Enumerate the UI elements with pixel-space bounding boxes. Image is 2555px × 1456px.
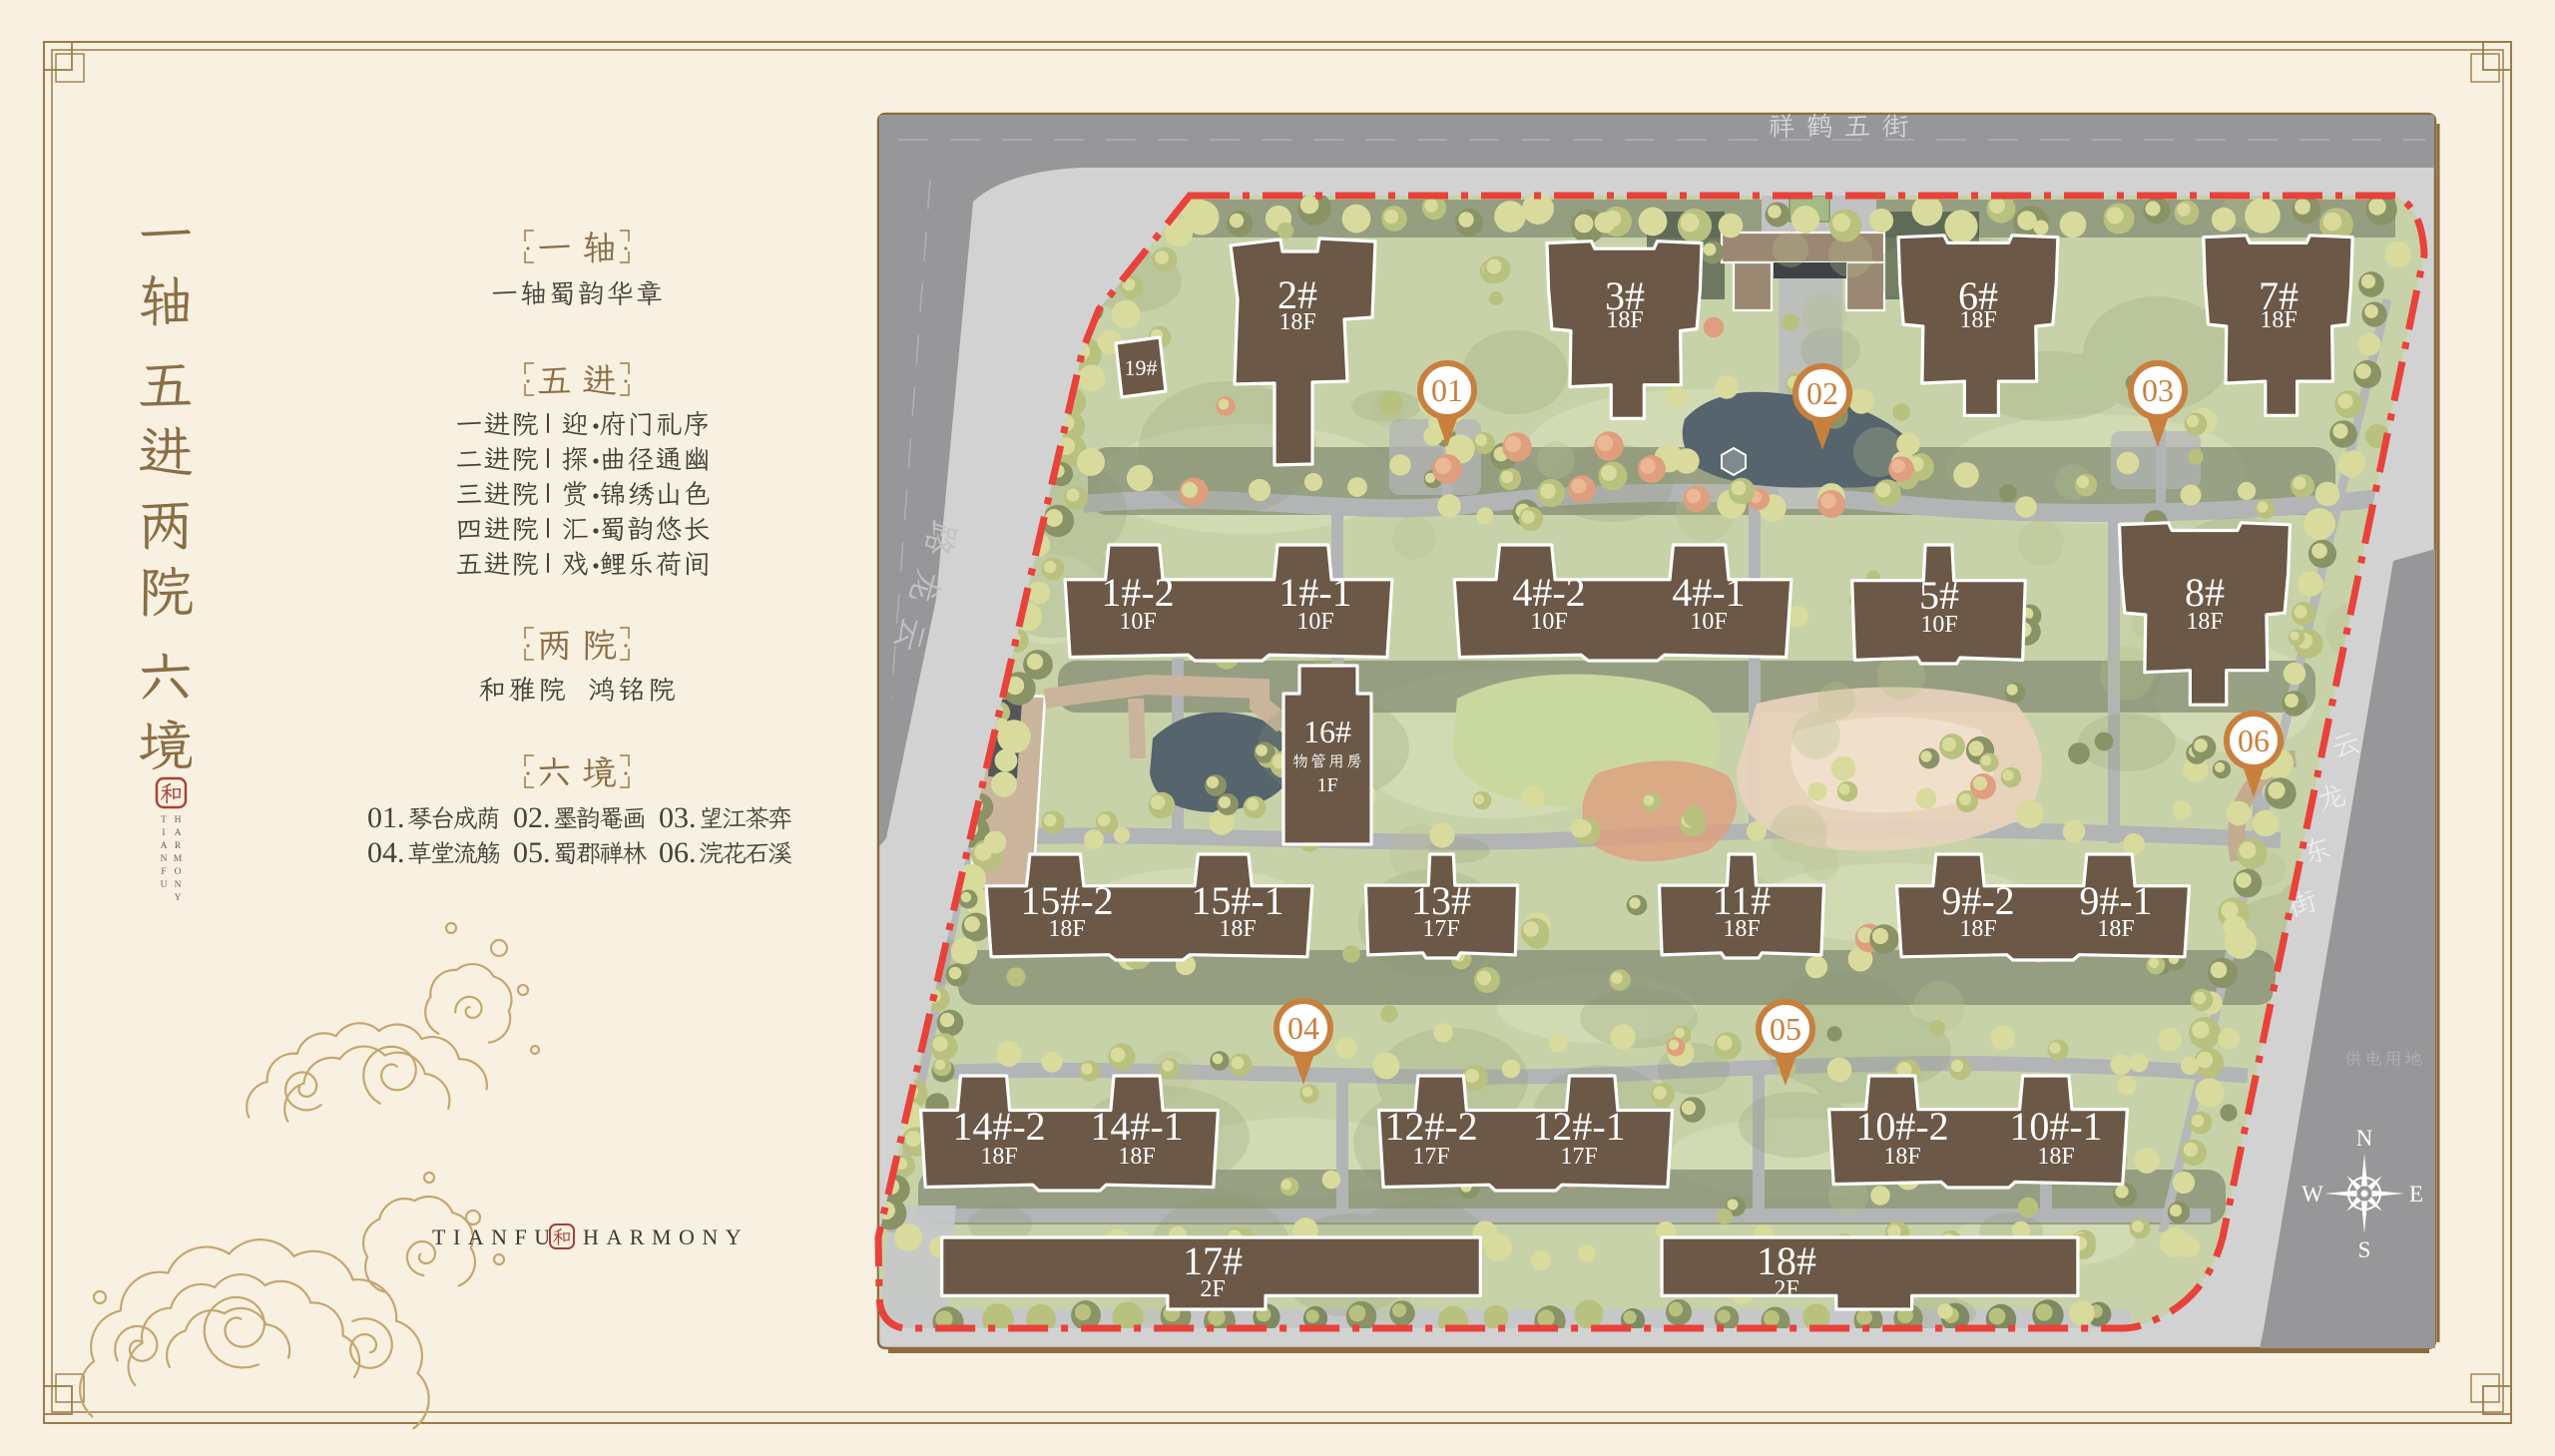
svg-text:01.: 01.	[367, 801, 405, 834]
svg-text:18F: 18F	[2097, 916, 2134, 942]
svg-text:R: R	[175, 841, 182, 851]
svg-text:12#-1: 12#-1	[1532, 1104, 1625, 1149]
svg-text:W: W	[2301, 1182, 2323, 1207]
svg-text:10F: 10F	[1530, 609, 1567, 635]
svg-text:A: A	[161, 841, 168, 851]
svg-text:N: N	[175, 880, 182, 890]
svg-text:10F: 10F	[1296, 609, 1333, 635]
svg-text:A: A	[175, 828, 182, 838]
svg-text:18F: 18F	[1219, 916, 1256, 942]
svg-text:18F: 18F	[1048, 916, 1085, 942]
svg-text:18F: 18F	[2260, 307, 2297, 333]
svg-text:16#: 16#	[1303, 714, 1351, 749]
svg-text:18F: 18F	[1606, 307, 1643, 333]
svg-text:05.: 05.	[513, 836, 551, 869]
svg-text:19#: 19#	[1125, 355, 1158, 380]
svg-text:O: O	[175, 867, 182, 877]
svg-text:10#-1: 10#-1	[2009, 1104, 2102, 1149]
svg-text:18F: 18F	[1883, 1144, 1920, 1170]
svg-text:01: 01	[1431, 372, 1463, 408]
svg-text:I: I	[162, 828, 165, 838]
svg-text:2F: 2F	[1774, 1276, 1798, 1302]
svg-text:M: M	[174, 854, 183, 864]
svg-text:18F: 18F	[1959, 307, 1996, 333]
svg-text:17F: 17F	[1560, 1144, 1597, 1170]
svg-text:18F: 18F	[2037, 1144, 2074, 1170]
svg-text:18F: 18F	[1959, 916, 1996, 942]
svg-text:04.: 04.	[367, 836, 405, 869]
svg-text:2F: 2F	[1200, 1276, 1225, 1302]
svg-text:F: F	[161, 867, 166, 877]
svg-text:E: E	[2409, 1182, 2423, 1207]
svg-text:TIANFU: TIANFU	[432, 1224, 558, 1249]
svg-text:10F: 10F	[1119, 609, 1156, 635]
svg-text:1F: 1F	[1316, 774, 1337, 796]
svg-text:H: H	[175, 815, 182, 825]
svg-text:05: 05	[1770, 1011, 1801, 1047]
svg-text:12#-2: 12#-2	[1384, 1104, 1477, 1149]
svg-text:17F: 17F	[1412, 1144, 1449, 1170]
svg-text:10F: 10F	[1690, 609, 1727, 635]
svg-text:T: T	[161, 815, 167, 825]
svg-text:U: U	[161, 880, 168, 890]
svg-text:N: N	[161, 854, 168, 864]
svg-text:18F: 18F	[2186, 609, 2223, 635]
svg-text:HARMONY: HARMONY	[583, 1224, 749, 1249]
svg-text:14#-2: 14#-2	[952, 1104, 1045, 1149]
svg-text:06: 06	[2238, 723, 2270, 758]
svg-text:03: 03	[2142, 372, 2174, 408]
svg-text:17F: 17F	[1422, 916, 1459, 942]
svg-text:02.: 02.	[513, 801, 551, 834]
svg-text:N: N	[2356, 1126, 2373, 1151]
svg-text:Y: Y	[175, 893, 182, 903]
svg-text:06.: 06.	[659, 836, 697, 869]
svg-text:18F: 18F	[1723, 916, 1760, 942]
svg-text:S: S	[2358, 1237, 2371, 1262]
svg-text:02: 02	[1806, 375, 1838, 411]
svg-text:18F: 18F	[1118, 1144, 1155, 1170]
svg-text:03.: 03.	[659, 801, 697, 834]
svg-text:10F: 10F	[1920, 612, 1957, 638]
svg-text:04: 04	[1287, 1010, 1319, 1046]
svg-text:18F: 18F	[1278, 309, 1315, 335]
svg-text:14#-1: 14#-1	[1090, 1104, 1183, 1149]
svg-text:10#-2: 10#-2	[1855, 1104, 1948, 1149]
svg-text:18F: 18F	[980, 1144, 1017, 1170]
